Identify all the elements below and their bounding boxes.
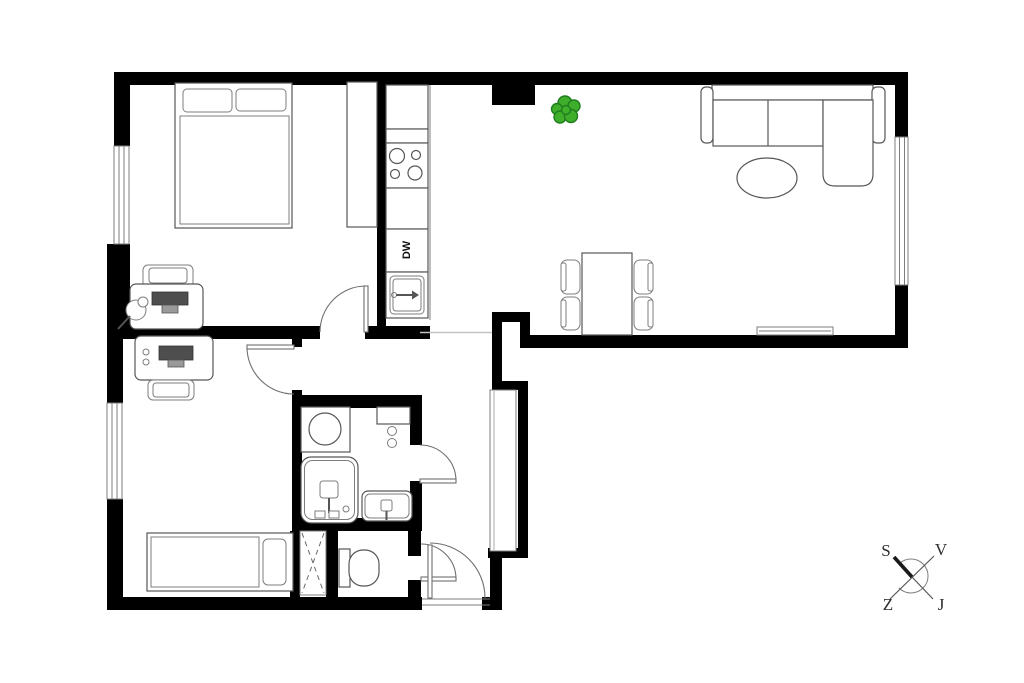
- washing-machine-icon: [301, 407, 350, 452]
- room2-desk: [135, 336, 213, 400]
- bathroom-sink-icon: [362, 491, 412, 521]
- dining-chair-icon: [561, 297, 580, 330]
- faucet: [381, 500, 392, 511]
- hallway-closet-icon: [490, 390, 516, 551]
- kitchen-sink-icon: [386, 272, 428, 318]
- chaise: [823, 100, 873, 186]
- fridge-cabinet-icon: [386, 85, 428, 129]
- hook: [388, 439, 397, 448]
- bedroom-desk: [118, 265, 203, 329]
- coffee-table-icon: [737, 158, 797, 198]
- stove-icon: [386, 143, 428, 188]
- pillow: [236, 89, 286, 111]
- entry-threshold: [422, 599, 490, 605]
- floorplan-drawing: DW: [0, 0, 1024, 683]
- window-room2-left: [107, 403, 122, 499]
- pillow: [183, 89, 232, 112]
- dishwasher-icon: DW: [386, 229, 428, 272]
- installation-shaft-icon: [300, 531, 326, 595]
- compass-north-needle: [894, 557, 912, 577]
- dining-set: [561, 253, 653, 335]
- door-bathroom: [420, 445, 456, 483]
- compass-letter-south: J: [938, 595, 945, 614]
- plant-icon: [552, 96, 581, 123]
- armrest: [701, 87, 713, 143]
- dishwasher-label: DW: [401, 240, 413, 259]
- double-bed-icon: [175, 83, 292, 228]
- toilet-icon: [339, 549, 379, 587]
- tv-bench-icon: [757, 327, 833, 335]
- bathtub-icon: [301, 457, 358, 523]
- shower-mixer: [320, 481, 338, 498]
- door-wc: [421, 544, 456, 581]
- hook: [388, 427, 397, 436]
- pillow: [263, 539, 286, 585]
- window-living-right: [895, 137, 908, 285]
- compass-letter-north: S: [881, 541, 890, 560]
- bath-cabinet-icon: [377, 407, 410, 424]
- floorplan-canvas: DW: [0, 0, 1024, 683]
- compass-letter-west: Z: [883, 595, 893, 614]
- window-bedroom-left: [114, 146, 129, 244]
- dining-chair-icon: [634, 297, 653, 330]
- dining-chair-icon: [561, 260, 580, 294]
- door-entry: [428, 543, 485, 598]
- door-bedroom: [320, 286, 368, 332]
- single-bed-icon: [147, 533, 293, 591]
- armrest: [872, 87, 885, 143]
- office-chair-icon: [148, 380, 194, 400]
- kitchen-counter: DW: [386, 85, 430, 320]
- dining-chair-icon: [634, 260, 653, 294]
- compass-rose: S V Z J: [881, 540, 948, 614]
- compass-letter-east: V: [935, 540, 948, 559]
- dining-table-icon: [582, 253, 632, 335]
- wardrobe-icon: [347, 82, 377, 227]
- door-room2: [247, 345, 294, 394]
